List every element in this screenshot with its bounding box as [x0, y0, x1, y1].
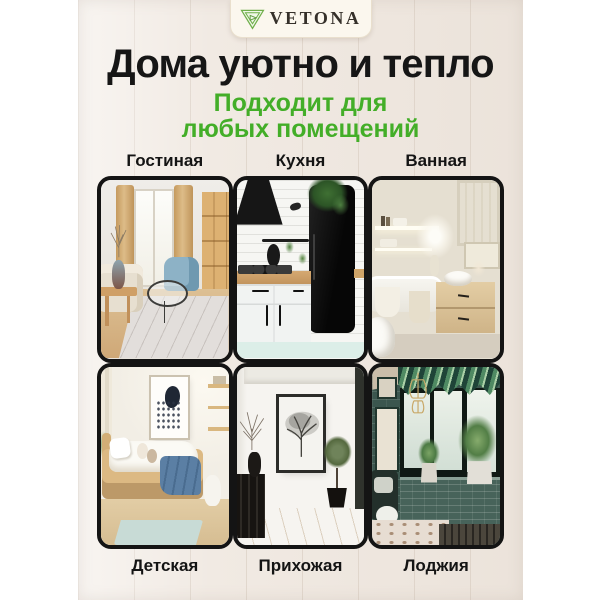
wall-shelf — [208, 384, 228, 388]
radiator-slats — [439, 524, 500, 545]
room-label-kitchen: Кухня — [233, 151, 369, 171]
counter-flowers — [469, 257, 488, 280]
vanity-drawer-seam — [436, 307, 495, 309]
wall-shelf — [208, 406, 228, 410]
subtitle: Подходит для любых помещений — [78, 90, 523, 142]
cage-pendant-lamp — [404, 367, 432, 428]
bathroom-scene — [372, 180, 500, 359]
room-labels-top: Гостиная Кухня Ванная — [97, 151, 504, 171]
vase-branches — [233, 402, 280, 456]
herb-pot — [284, 239, 295, 255]
folded-towels — [380, 239, 397, 247]
coffee-table — [147, 280, 188, 307]
dark-window-edge — [355, 367, 364, 510]
bookshelf — [202, 192, 229, 296]
tree-artwork — [279, 397, 324, 470]
draped-towel-2 — [409, 291, 429, 323]
room-label-bathroom: Ванная — [368, 151, 504, 171]
room-label-hallway: Прихожая — [233, 556, 369, 576]
black-console — [234, 474, 265, 538]
room-photo-bathroom — [368, 176, 504, 363]
room-labels-bottom: Детская Прихожая Лоджия — [97, 556, 504, 576]
kitchen-scene — [237, 180, 365, 359]
brand-name: VETONA — [270, 8, 362, 29]
subtitle-line-2: любых помещений — [182, 115, 420, 143]
draped-towel — [375, 287, 401, 317]
hallway-scene — [237, 367, 365, 546]
room-photo-kids-room — [97, 363, 233, 550]
room-photo-hallway — [233, 363, 369, 550]
brand-badge: VETONA — [230, 0, 372, 38]
poster-dots — [156, 400, 182, 430]
countertop-right — [354, 269, 364, 278]
room-photo-living-room — [97, 176, 233, 363]
wood-background-panel: VETONA Дома уютно и тепло Подходит для л… — [78, 0, 523, 600]
table-leg — [105, 296, 109, 326]
bottle — [386, 217, 389, 225]
white-planter — [421, 463, 438, 483]
drawer-handle — [293, 290, 304, 292]
wall-mirror-panel — [377, 409, 396, 470]
plush-bunny — [204, 475, 221, 505]
blue-blanket — [160, 456, 201, 495]
kids-room-scene — [101, 367, 229, 546]
black-vase — [248, 452, 261, 477]
gas-hob — [238, 265, 292, 274]
patterned-floor — [372, 520, 449, 545]
tree-trunk — [336, 468, 338, 489]
potted-tree-foliage — [318, 425, 356, 473]
room-photo-loggia — [368, 363, 504, 550]
room-photo-kitchen — [233, 176, 369, 363]
blue-rug — [114, 520, 203, 545]
blossom-vase — [430, 255, 439, 276]
table-leg — [127, 296, 131, 323]
window-mullion — [153, 189, 156, 287]
transom-window — [379, 379, 396, 397]
bottle — [381, 216, 385, 226]
folded-towels — [393, 218, 407, 225]
vetona-logo-icon — [240, 8, 265, 30]
door-handle — [266, 305, 268, 326]
headline: Дома уютно и тепло — [78, 42, 523, 87]
room-label-living-room: Гостиная — [97, 151, 233, 171]
plush-toy-2 — [147, 449, 157, 463]
gradient-vase — [112, 260, 125, 289]
fridge-handle — [313, 234, 316, 280]
ceiling — [244, 367, 356, 385]
books — [213, 376, 226, 384]
dry-branches — [101, 216, 137, 264]
subtitle-line-1: Подходит для — [214, 89, 388, 117]
door-handle — [279, 305, 281, 326]
bathroom-window — [457, 180, 500, 246]
pillow — [109, 437, 132, 459]
light-cushion — [374, 477, 393, 493]
white-cabinets — [237, 284, 311, 345]
kitchen-floor — [237, 342, 365, 358]
living-room-scene — [101, 180, 229, 359]
herb-pot-2 — [297, 251, 308, 265]
loggia-scene — [372, 367, 500, 546]
sill-plant-2 — [458, 415, 498, 467]
white-blossom-plant — [416, 214, 454, 259]
white-planter-2 — [467, 461, 493, 484]
wall-shelf — [208, 427, 228, 431]
room-label-loggia: Лоджия — [368, 556, 504, 576]
drawer-handle — [252, 290, 269, 292]
room-photo-grid — [97, 176, 504, 549]
room-label-kids-room: Детская — [97, 556, 233, 576]
coffee-table-leg — [164, 301, 166, 322]
plant-on-fridge-2 — [329, 191, 352, 220]
vessel-sink — [444, 271, 472, 286]
toilet — [368, 317, 395, 356]
